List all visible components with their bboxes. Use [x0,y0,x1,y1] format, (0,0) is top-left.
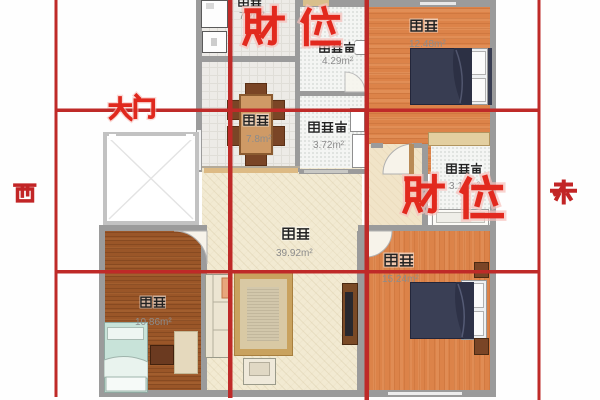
svg-text:3.72m²: 3.72m² [313,140,345,151]
svg-text:4.29m²: 4.29m² [322,56,354,67]
svg-text:15.24m²: 15.24m² [382,274,419,285]
svg-text:10.86m²: 10.86m² [135,317,172,328]
svg-text:7.8m²: 7.8m² [246,134,272,145]
svg-text:12.48m²: 12.48m² [409,39,446,50]
svg-text:39.92m²: 39.92m² [276,248,313,259]
